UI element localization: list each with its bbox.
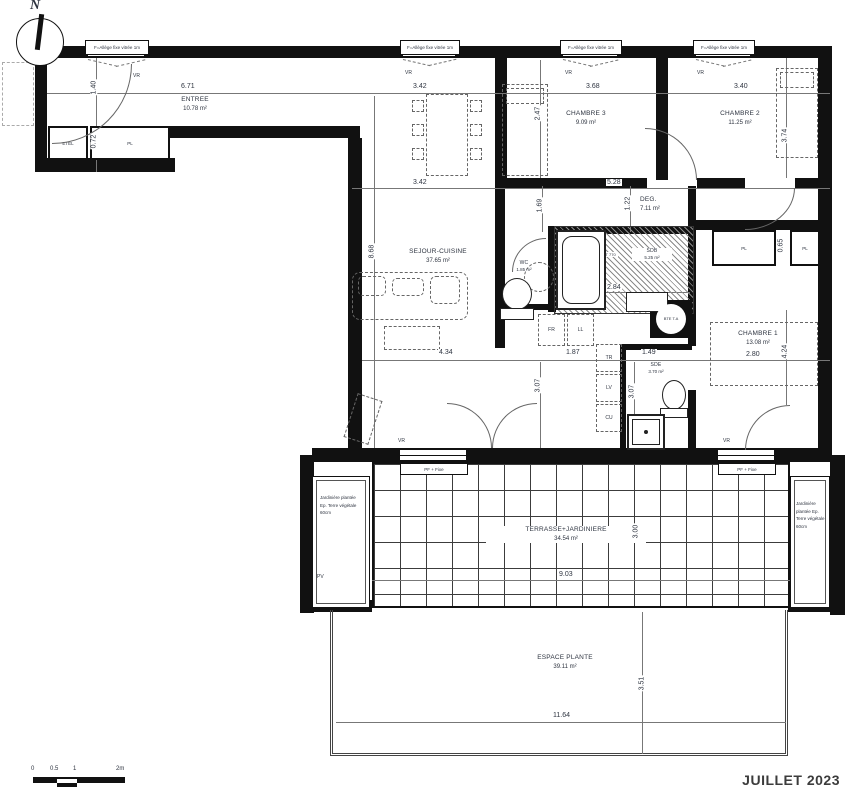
washer: LL — [567, 314, 594, 346]
dim-3-40: 3.40 — [733, 83, 749, 90]
bathtub-basin — [562, 236, 600, 304]
wall — [35, 158, 175, 172]
room-area: 11.25 m² — [702, 119, 778, 127]
closet-pl: PL — [90, 126, 170, 160]
scale-bar: 0 0.5 1 2m — [30, 762, 140, 792]
room-name: SDB — [632, 248, 672, 255]
coffee-table — [384, 326, 440, 350]
room-espace-plante: ESPACE PLANTE 39.11 m² — [500, 654, 630, 671]
room-name: SEJOUR-CUISINE — [390, 248, 486, 257]
vr-label: VR — [723, 438, 730, 444]
window — [400, 448, 466, 462]
compass-north-label: N — [30, 0, 40, 14]
allege-label: F=Allège fixe vitrée 1m — [701, 45, 747, 50]
toilet-tank-wc — [500, 308, 534, 320]
wall — [818, 46, 832, 462]
door-arc — [645, 128, 697, 180]
pv-label: PV — [317, 574, 324, 580]
allege-label: F=Allège fixe vitrée 1m — [568, 45, 614, 50]
planted-area — [330, 610, 788, 756]
scale-segment — [33, 779, 57, 783]
room-area: 1.85 m² — [504, 267, 544, 273]
room-name: ESPACE PLANTE — [500, 654, 630, 663]
planter-left-text: Jardinière plantée Ep. Terre végétale 60… — [320, 494, 362, 517]
room-area: 3.70 m² — [634, 369, 678, 375]
room-area: 9.09 m² — [548, 119, 624, 127]
closet-pl: PL — [712, 230, 776, 266]
dim-6-71: 6.71 — [180, 83, 196, 90]
window-annotation: F=Allège fixe vitrée 1m — [560, 40, 622, 55]
room-chambre3: CHAMBRE 3 9.09 m² — [548, 110, 624, 127]
fr-label: FR — [548, 327, 555, 333]
vr-label: VR — [398, 438, 405, 444]
sofa-cushion — [392, 278, 424, 296]
dim-0-65: 0.65 — [777, 238, 784, 254]
dim-2-80: 2.80 — [745, 351, 761, 358]
toilet-sde — [662, 380, 686, 410]
room-chambre2: CHAMBRE 2 11.25 m² — [702, 110, 778, 127]
chair — [470, 148, 482, 160]
allege-label: F=Allège fixe vitrée 1m — [94, 45, 140, 50]
window-annotation: F=Allège fixe vitrée 1m — [400, 40, 460, 55]
door-arc — [745, 405, 790, 450]
chair — [412, 124, 424, 136]
window-swing — [723, 59, 751, 66]
chair — [470, 100, 482, 112]
pl-label: PL — [127, 141, 133, 146]
wall — [795, 178, 832, 188]
dim-0-72: 0.72 — [90, 134, 97, 150]
room-name: CHAMBRE 2 — [702, 110, 778, 119]
dim-3-51: 3.51 — [638, 676, 645, 692]
dimension-line — [540, 362, 541, 448]
door-arc — [492, 403, 537, 448]
dim-9-03: 9.03 — [558, 571, 574, 578]
armchair — [430, 276, 460, 304]
dimension-line — [336, 722, 786, 723]
cooktop: CU — [596, 404, 622, 432]
dim-3-07: 3.07 — [628, 384, 635, 400]
duct-circle: BTE T.A — [656, 304, 686, 334]
allege-label: F=Allège fixe vitrée 1m — [407, 45, 453, 50]
tr-label: TR — [606, 355, 613, 361]
chair — [412, 100, 424, 112]
vr-label: VR — [133, 73, 140, 79]
toilet-wc — [502, 278, 532, 310]
room-deg: DEG. 7.11 m² — [640, 196, 684, 213]
scale-1: 1 — [73, 766, 76, 772]
window — [718, 448, 774, 462]
fridge: FR — [538, 314, 565, 346]
room-area: 7.11 m² — [640, 205, 684, 213]
wall — [160, 126, 360, 138]
door-arc — [447, 403, 492, 448]
pf-fixe-label: PF + Fixe — [737, 467, 756, 472]
dim-2-84: 2.84 — [606, 284, 622, 291]
dim-5-28: 5.28 — [606, 179, 622, 186]
room-name: TERRASSE+JARDINIERE — [486, 526, 646, 535]
pl-label: PL — [802, 246, 808, 251]
vr-label: VR — [565, 70, 572, 76]
window-swing — [563, 59, 591, 66]
room-area: 37.65 m² — [390, 257, 486, 265]
dim-3-68: 3.68 — [585, 83, 601, 90]
dim-3-74: 3.74 — [781, 128, 788, 144]
plan-date: JUILLET 2023 — [690, 772, 840, 788]
room-name: CHAMBRE 3 — [548, 110, 624, 119]
dim-3-07: 3.07 — [534, 378, 541, 394]
pf-fixe-label-box: PF + Fixe — [400, 463, 468, 475]
window-annotation: F=Allège fixe vitrée 1m — [85, 40, 149, 55]
room-wc: WC 1.85 m² — [504, 260, 544, 273]
room-area: 5.25 m² — [632, 255, 672, 261]
room-name: DEG. — [640, 196, 684, 205]
planter-right-text: Jardinière plantée Ep. Terre végétale 60… — [796, 500, 826, 531]
sofa-cushion — [358, 276, 386, 296]
dim-1-40: 1.40 — [90, 80, 97, 96]
scale-0: 0 — [31, 766, 34, 772]
scale-segment — [77, 779, 125, 783]
room-name: WC — [504, 260, 544, 267]
window-swing — [696, 59, 724, 66]
dim-11-64: 11.64 — [552, 712, 571, 719]
dim-3-42: 3.42 — [412, 179, 428, 186]
room-sde: SDE 3.70 m² — [634, 362, 678, 375]
wall — [688, 390, 696, 450]
room-name: CHAMBRE 1 — [718, 330, 798, 339]
dim-4-24: 4.24 — [781, 344, 788, 360]
pf-fixe-label: PF + Fixe — [424, 467, 443, 472]
lv-label: LV — [606, 385, 612, 391]
shower-drain — [644, 430, 648, 434]
room-name: ENTREE — [150, 96, 240, 105]
bte-label: BTE T.A — [662, 317, 680, 322]
vr-label: VR — [405, 70, 412, 76]
wall — [495, 178, 647, 188]
adjacent-structure-outline — [2, 62, 34, 126]
window-swing — [590, 59, 618, 66]
dim-1-49: 1.49 — [641, 349, 657, 356]
pl-label: PL — [741, 246, 747, 251]
room-area: 39.11 m² — [500, 663, 630, 671]
floor-plan: N F=Allège fixe vitrée 1m F=Allège fixe … — [0, 0, 862, 800]
dim-1-87: 1.87 — [565, 349, 581, 356]
dim-3-42: 3.42 — [412, 83, 428, 90]
dim-1-69: 1.69 — [536, 198, 543, 214]
ll-label: LL — [578, 327, 584, 333]
window-swing — [429, 59, 457, 66]
dishwasher: LV — [596, 374, 622, 402]
planter-right — [790, 476, 830, 608]
room-area: 34.54 m² — [486, 535, 646, 543]
room-area: 10.78 m² — [150, 105, 240, 113]
room-sejour: SEJOUR-CUISINE 37.65 m² — [390, 248, 486, 265]
pillow — [506, 88, 544, 104]
dim-8-68: 8.68 — [368, 244, 375, 260]
room-entree: ENTREE 10.78 m² — [150, 96, 240, 113]
pillow — [780, 72, 814, 88]
scale-2m: 2m — [116, 766, 124, 772]
dim-2-47: 2.47 — [534, 106, 541, 122]
room-terrasse: TERRASSE+JARDINIERE 34.54 m² — [486, 526, 646, 543]
window-annotation: F=Allège fixe vitrée 1m — [693, 40, 755, 55]
dim-1-22: 1.22 — [624, 196, 631, 212]
dryer: TR — [596, 344, 622, 372]
scale-05: 0.5 — [50, 766, 58, 772]
dining-table — [426, 94, 468, 176]
chair — [470, 124, 482, 136]
pf-fixe-label-box: PF + Fixe — [718, 463, 776, 475]
room-name: SDE — [634, 362, 678, 369]
chair — [412, 148, 424, 160]
room-sdb: SDB 5.25 m² — [632, 248, 672, 261]
window-swing — [403, 59, 431, 66]
dim-3-00: 3.00 — [632, 524, 639, 540]
scale-segment — [57, 783, 77, 787]
wall — [697, 178, 745, 188]
cu-label: CU — [605, 415, 612, 421]
dimension-line — [372, 580, 790, 581]
closet-pl: PL — [790, 230, 820, 266]
dim-4-34: 4.34 — [438, 349, 454, 356]
wall — [830, 455, 845, 615]
vr-label: VR — [697, 70, 704, 76]
